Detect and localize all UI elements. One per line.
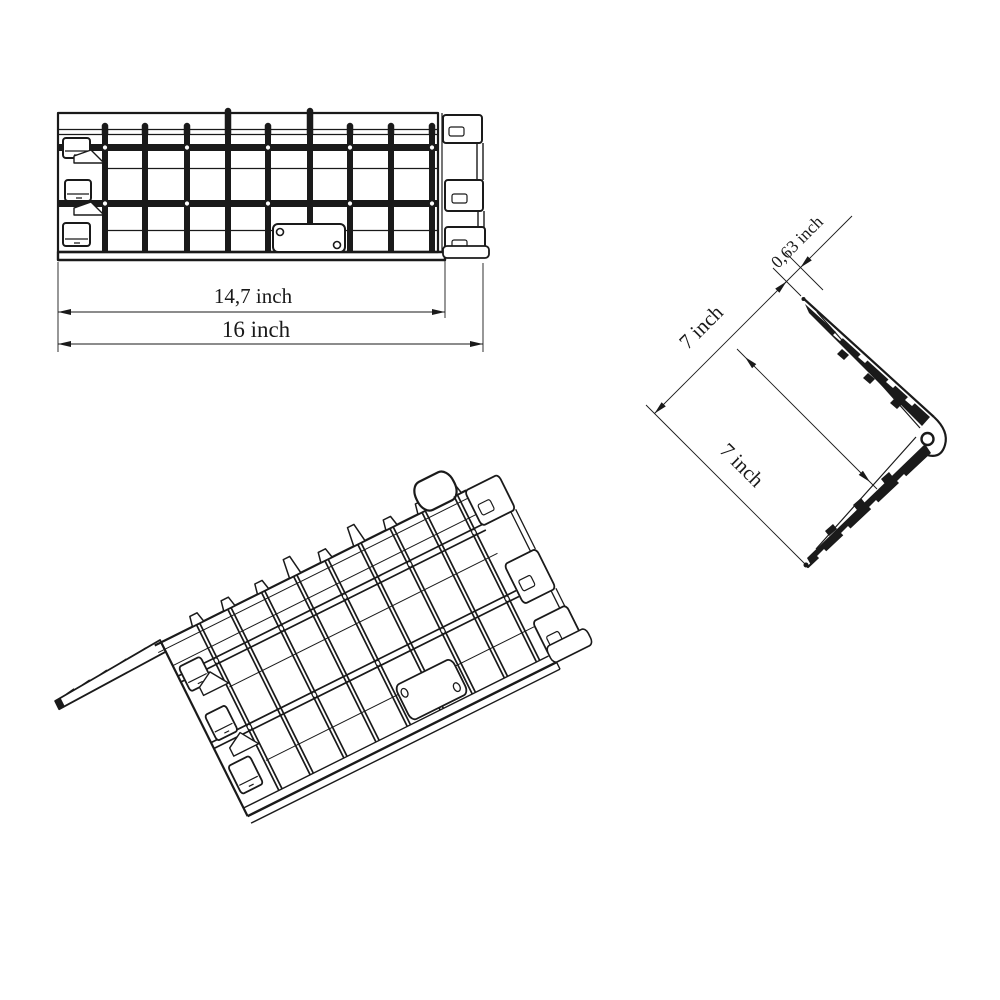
dim-label-edge-thickness: 0,63 inch bbox=[767, 211, 827, 271]
top-view-dimensions: 14,7 inch 16 inch bbox=[58, 257, 483, 352]
top-edge-band bbox=[58, 130, 438, 135]
technical-drawing-canvas: 14,7 inch 16 inch 7 inch bbox=[0, 0, 1000, 1000]
ridge-inner-line bbox=[158, 497, 471, 653]
label-plate bbox=[273, 224, 345, 252]
tooth-latch-1 bbox=[449, 127, 464, 136]
interlock-teeth bbox=[443, 115, 489, 258]
dim-label-inner-width: 14,7 inch bbox=[214, 284, 293, 308]
technical-drawing-page: 14,7 inch 16 inch 7 inch bbox=[0, 0, 1000, 1000]
tooth-foot bbox=[443, 246, 489, 258]
lower-rib-stubs bbox=[825, 472, 893, 536]
tooth-latch-2 bbox=[452, 194, 467, 203]
blade-edge bbox=[52, 640, 168, 710]
top-view: 14,7 inch 16 inch bbox=[58, 111, 489, 352]
apex-curl bbox=[922, 433, 934, 445]
ext-line-lower-tip bbox=[646, 405, 808, 567]
iso-pivot-holes bbox=[213, 529, 510, 731]
upper-leg-wall bbox=[805, 304, 930, 426]
ext-line-upper-tip bbox=[773, 268, 801, 296]
dim-line-upper-side bbox=[655, 282, 787, 414]
plate-hole-2 bbox=[334, 242, 341, 249]
plate-hole-1 bbox=[277, 229, 284, 236]
isometric-view bbox=[40, 444, 597, 877]
rib-tip-spikes bbox=[105, 111, 432, 134]
upper-leg-outer-edge bbox=[803, 298, 934, 417]
side-view-dimensions: 7 inch 0,63 inch 7 inch bbox=[646, 211, 877, 567]
upper-tip bbox=[802, 297, 806, 301]
lower-leg-wall bbox=[807, 444, 931, 565]
longitudinal-ribs bbox=[58, 148, 438, 204]
dim-label-lower-side: 7 inch bbox=[715, 438, 769, 492]
dim-label-upper-side: 7 inch bbox=[674, 300, 728, 354]
inner-wall-lines bbox=[816, 312, 920, 549]
bottom-strip bbox=[58, 252, 445, 260]
dim-label-overall-width: 16 inch bbox=[222, 317, 291, 342]
side-profile-view: 7 inch 0,63 inch 7 inch bbox=[646, 211, 946, 567]
iso-cell-lines bbox=[173, 514, 534, 779]
left-tabs bbox=[63, 138, 104, 246]
